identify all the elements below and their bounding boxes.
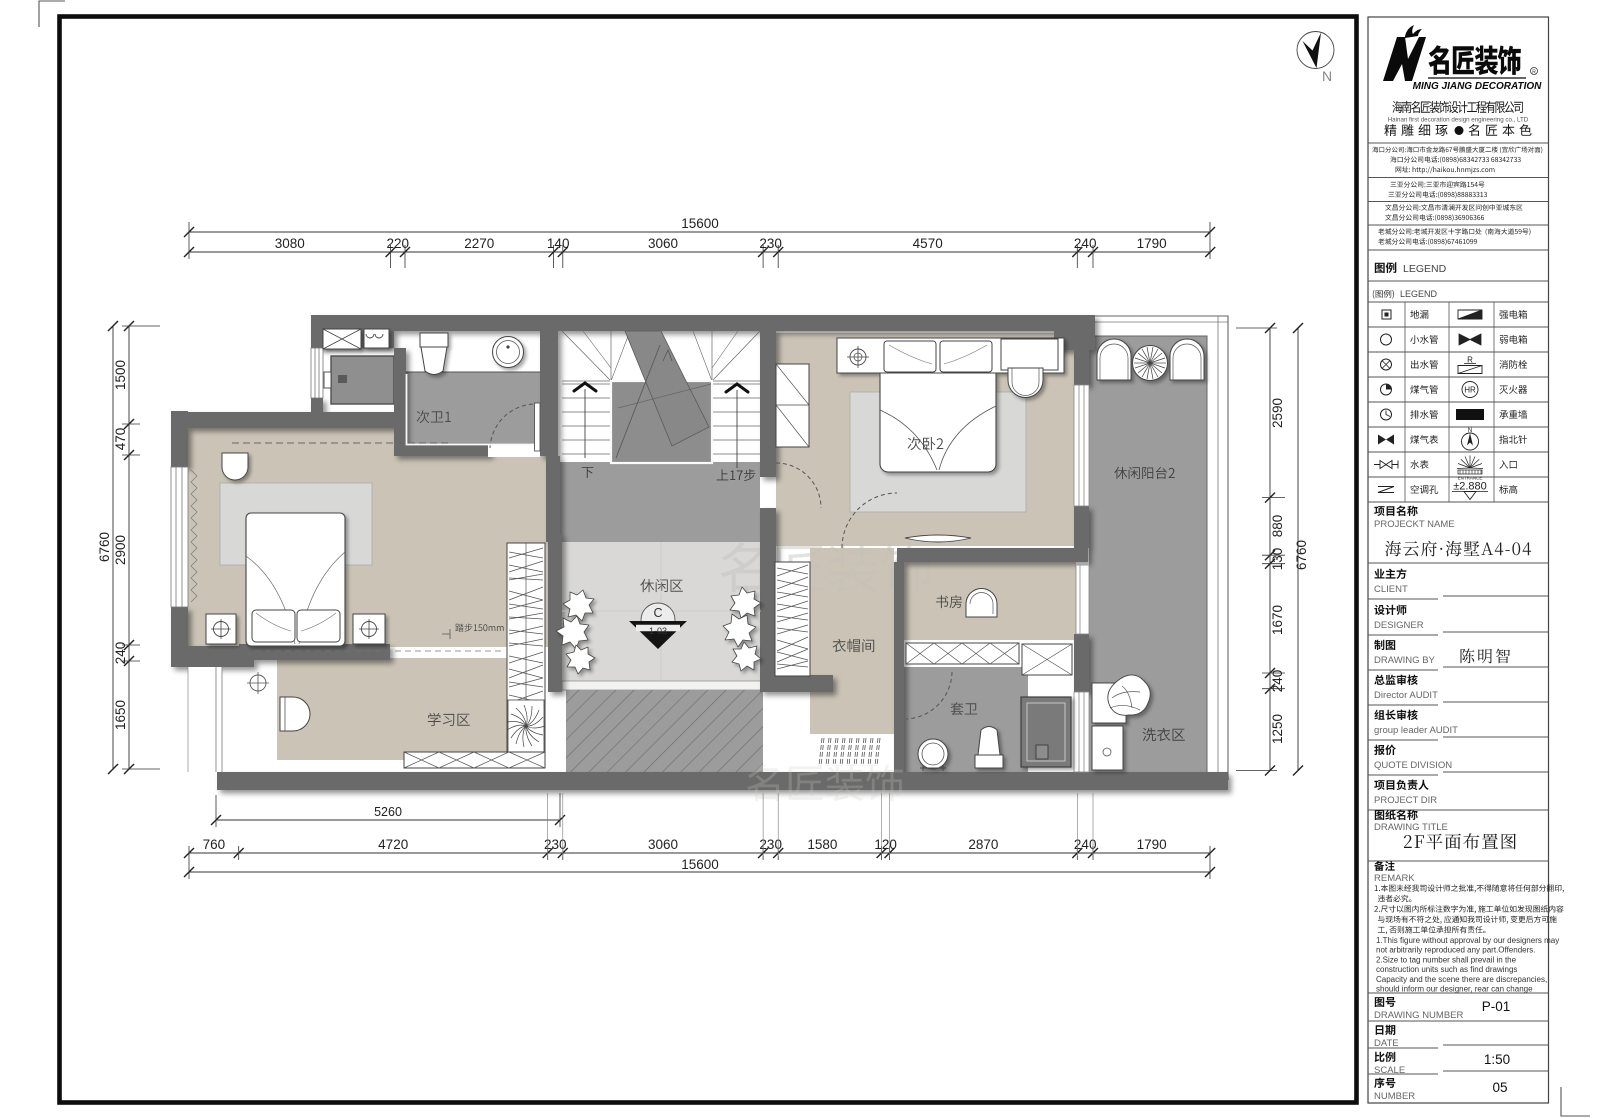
svg-text:CLIENT: CLIENT (1374, 584, 1408, 595)
svg-text:1670: 1670 (1270, 605, 1285, 635)
svg-text:230: 230 (759, 236, 782, 251)
svg-text:LEGEND: LEGEND (1400, 289, 1438, 299)
svg-text:240: 240 (113, 642, 128, 665)
svg-text:not arbitrarily reproduced any: not arbitrarily reproduced any part.Offe… (1376, 946, 1536, 955)
svg-text:2270: 2270 (464, 236, 494, 251)
svg-text:construction units such as fin: construction units such as find drawings (1376, 965, 1517, 974)
svg-text:PROJECKT NAME: PROJECKT NAME (1374, 519, 1455, 530)
svg-text:1:50: 1:50 (1484, 1052, 1510, 1067)
svg-text:2870: 2870 (968, 837, 998, 852)
svg-text:05: 05 (1492, 1080, 1507, 1095)
svg-text:1580: 1580 (807, 837, 837, 852)
svg-text:1-03: 1-03 (649, 626, 667, 636)
svg-text:2.Size to tag number shall pre: 2.Size to tag number shall prevail in th… (1376, 955, 1517, 964)
svg-text:Hainan first decoration design: Hainan first decoration design engineeri… (1388, 117, 1529, 124)
svg-text:DRAWING TITLE: DRAWING TITLE (1374, 822, 1448, 833)
svg-text:1790: 1790 (1137, 837, 1167, 852)
svg-text:Capacity and the scene there a: Capacity and the scene there are discrep… (1376, 975, 1547, 984)
svg-text:240: 240 (1074, 236, 1097, 251)
svg-text:group leader AUDIT: group leader AUDIT (1374, 725, 1458, 736)
svg-text:5260: 5260 (374, 805, 402, 819)
svg-text:C: C (653, 606, 662, 620)
svg-text:PROJECT DIR: PROJECT DIR (1374, 795, 1437, 806)
svg-text:should inform our designer, re: should inform our designer, rear can cha… (1376, 985, 1533, 994)
svg-text:3080: 3080 (275, 236, 305, 251)
svg-text:Director AUDIT: Director AUDIT (1374, 690, 1438, 701)
svg-text:6760: 6760 (1294, 540, 1309, 570)
svg-text:DRAWING NUMBER: DRAWING NUMBER (1374, 1010, 1464, 1021)
svg-text:15600: 15600 (681, 857, 719, 872)
svg-text:880: 880 (1270, 515, 1285, 538)
svg-text:DESIGNER: DESIGNER (1374, 620, 1424, 631)
svg-text:HR: HR (1464, 386, 1476, 395)
svg-text:LEGEND: LEGEND (1403, 263, 1447, 275)
svg-text:760: 760 (203, 837, 226, 852)
svg-text:1250: 1250 (1270, 714, 1285, 744)
svg-text:4570: 4570 (913, 236, 943, 251)
svg-text:220: 220 (387, 236, 410, 251)
svg-text:N: N (1468, 428, 1472, 434)
svg-text:REMARK: REMARK (1374, 873, 1415, 884)
svg-text:N: N (1322, 68, 1332, 84)
svg-text:1650: 1650 (113, 700, 128, 730)
svg-text:NUMBER: NUMBER (1374, 1091, 1415, 1102)
svg-text:R: R (1532, 70, 1536, 76)
svg-text:140: 140 (547, 236, 570, 251)
svg-text:2590: 2590 (1270, 398, 1285, 428)
svg-text:1.This figure without approval: 1.This figure without approval by our de… (1376, 936, 1559, 945)
svg-text:1790: 1790 (1137, 236, 1167, 251)
svg-text:4720: 4720 (378, 837, 408, 852)
svg-text:MING JIANG DECORATION: MING JIANG DECORATION (1413, 81, 1542, 92)
svg-text:DRAWING BY: DRAWING BY (1374, 655, 1436, 666)
svg-text:P-01: P-01 (1482, 999, 1511, 1014)
svg-text:±2.880: ±2.880 (1453, 481, 1487, 493)
svg-text:120: 120 (874, 837, 897, 852)
svg-text:3060: 3060 (648, 837, 678, 852)
svg-text:6760: 6760 (97, 532, 112, 562)
svg-text:QUOTE DIVISION: QUOTE DIVISION (1374, 760, 1452, 771)
svg-text:1500: 1500 (113, 360, 128, 390)
svg-text:470: 470 (113, 428, 128, 451)
svg-text:DATE: DATE (1374, 1038, 1399, 1049)
svg-text:2900: 2900 (113, 535, 128, 565)
svg-text:15600: 15600 (681, 216, 719, 231)
svg-text:240: 240 (1270, 670, 1285, 693)
svg-text:130: 130 (1270, 548, 1285, 571)
svg-text:3060: 3060 (648, 236, 678, 251)
